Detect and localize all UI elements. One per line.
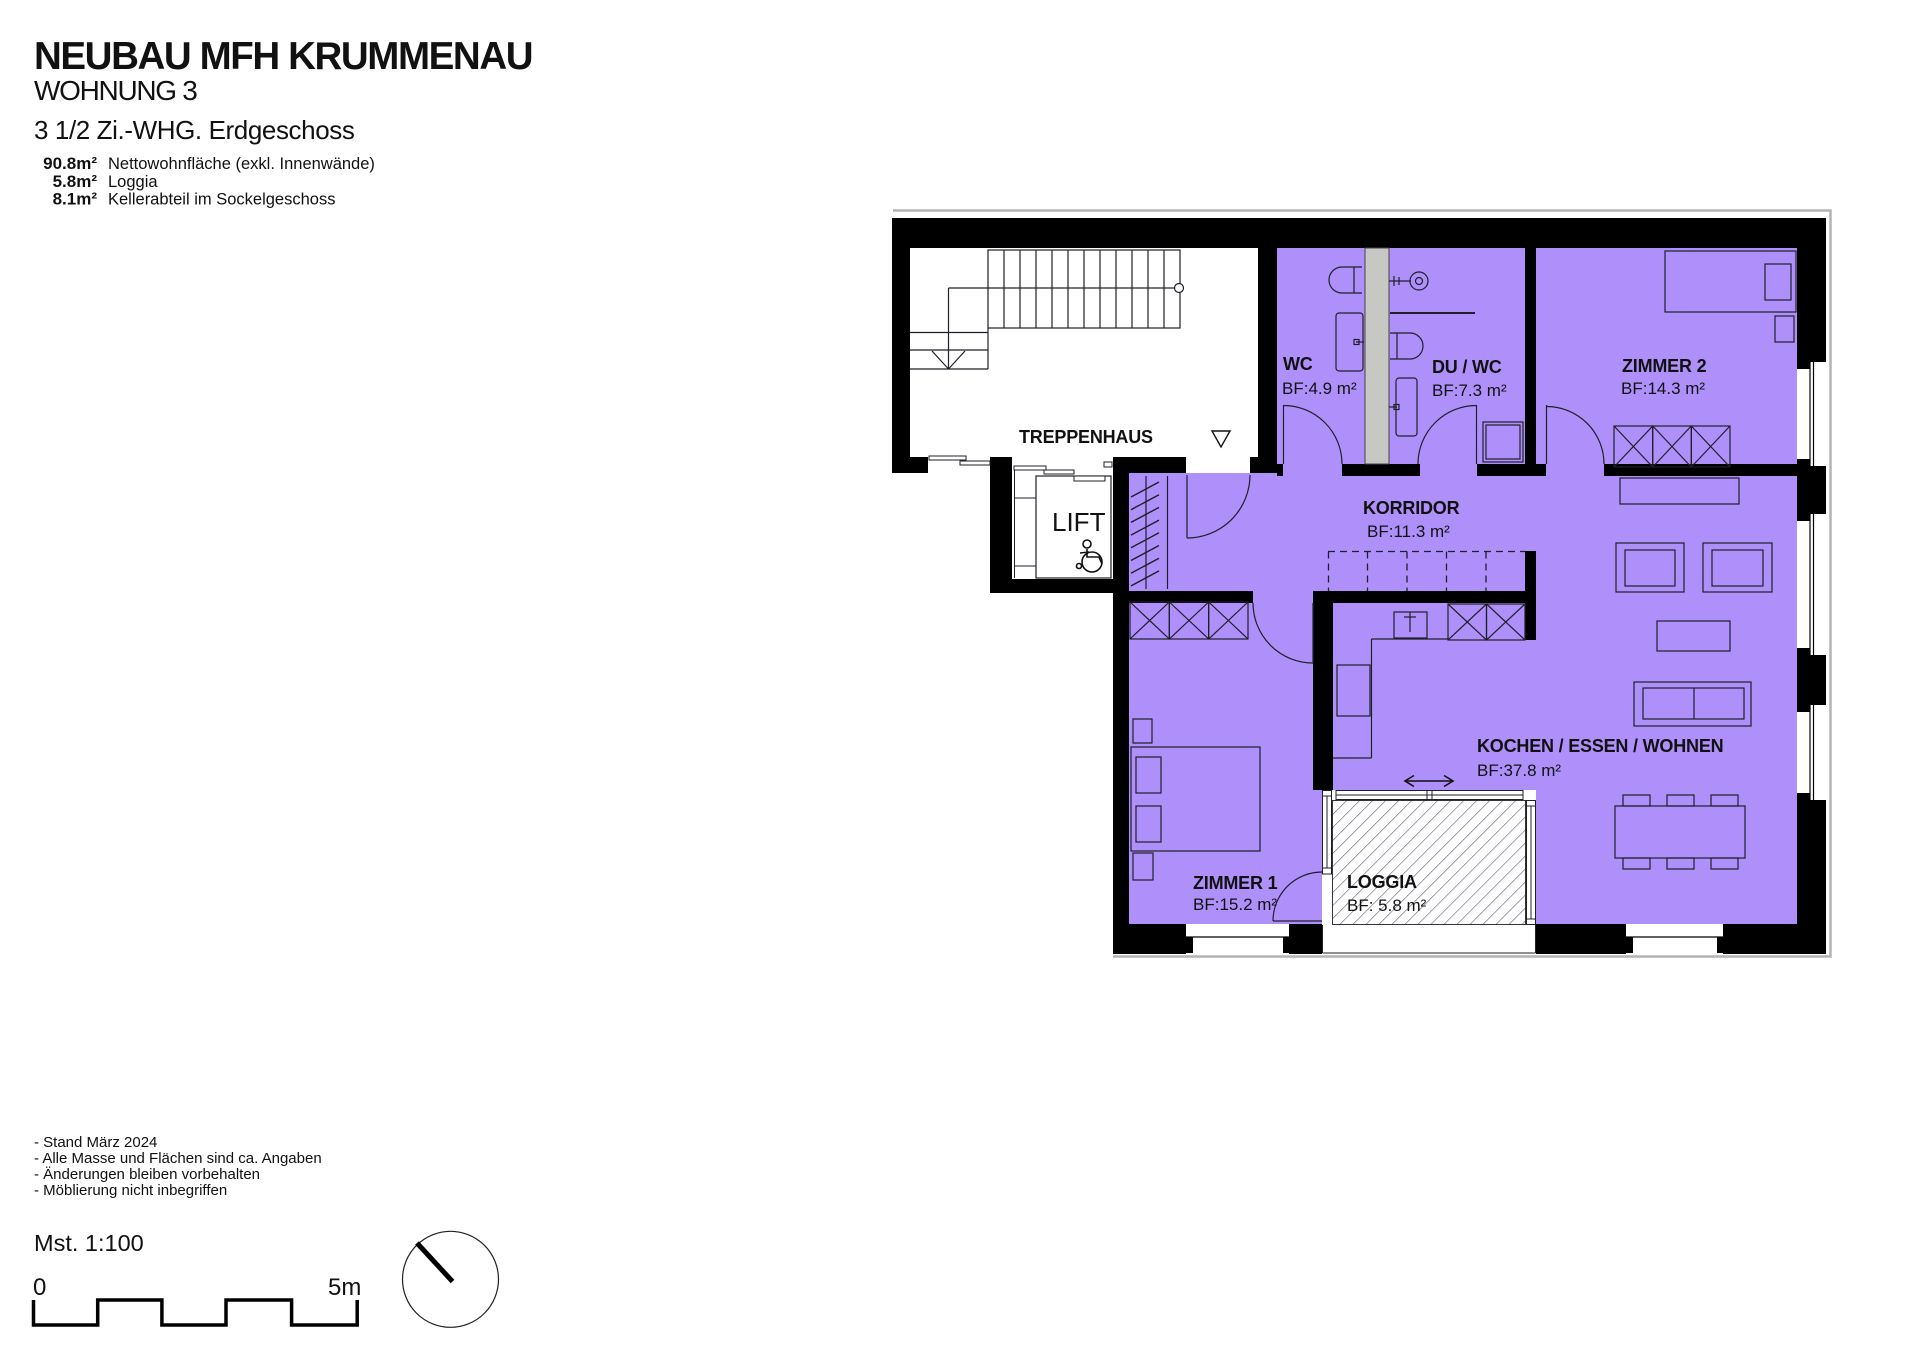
svg-text:KOCHEN / ESSEN / WOHNEN: KOCHEN / ESSEN / WOHNEN bbox=[1477, 736, 1723, 756]
svg-text:BF:37.8 m²: BF:37.8 m² bbox=[1477, 761, 1561, 780]
svg-text:Loggia: Loggia bbox=[108, 173, 158, 191]
svg-text:- Möblierung nicht inbegriffen: - Möblierung nicht inbegriffen bbox=[34, 1182, 227, 1199]
svg-text:DU / WC: DU / WC bbox=[1432, 357, 1502, 377]
svg-text:KORRIDOR: KORRIDOR bbox=[1363, 498, 1460, 518]
svg-text:3 1/2 Zi.-WHG. Erdgeschoss: 3 1/2 Zi.-WHG. Erdgeschoss bbox=[34, 115, 355, 145]
svg-text:- Alle Masse und Flächen sind: - Alle Masse und Flächen sind ca. Angabe… bbox=[34, 1150, 322, 1167]
svg-text:BF:4.9 m²: BF:4.9 m² bbox=[1282, 379, 1357, 398]
svg-text:ZIMMER 1: ZIMMER 1 bbox=[1193, 873, 1278, 893]
svg-text:5m: 5m bbox=[328, 1274, 361, 1301]
svg-text:BF:15.2 m²: BF:15.2 m² bbox=[1193, 895, 1277, 914]
svg-text:BF: 5.8 m²: BF: 5.8 m² bbox=[1347, 896, 1427, 915]
svg-text:WOHNUNG 3: WOHNUNG 3 bbox=[34, 75, 197, 106]
svg-text:ZIMMER 2: ZIMMER 2 bbox=[1622, 356, 1707, 376]
svg-text:- Stand März 2024: - Stand März 2024 bbox=[34, 1134, 157, 1151]
svg-text:90.8m²: 90.8m² bbox=[43, 154, 97, 173]
svg-text:BF:11.3 m²: BF:11.3 m² bbox=[1367, 522, 1450, 541]
svg-text:BF:14.3 m²: BF:14.3 m² bbox=[1621, 379, 1705, 398]
svg-text:8.1m²: 8.1m² bbox=[53, 190, 98, 209]
svg-text:TREPPENHAUS: TREPPENHAUS bbox=[1019, 427, 1153, 447]
svg-text:Mst. 1:100: Mst. 1:100 bbox=[34, 1230, 144, 1256]
svg-text:LIFT: LIFT bbox=[1052, 507, 1106, 537]
svg-text:Kellerabteil im Sockelgeschoss: Kellerabteil im Sockelgeschoss bbox=[108, 191, 335, 209]
svg-text:WC: WC bbox=[1283, 354, 1313, 374]
svg-text:- Änderungen bleiben vorbehalt: - Änderungen bleiben vorbehalten bbox=[34, 1166, 260, 1183]
svg-text:0: 0 bbox=[33, 1274, 46, 1301]
svg-text:5.8m²: 5.8m² bbox=[53, 172, 98, 191]
svg-text:LOGGIA: LOGGIA bbox=[1347, 872, 1417, 892]
svg-text:Nettowohnfläche (exkl. Innenwä: Nettowohnfläche (exkl. Innenwände) bbox=[108, 155, 375, 173]
svg-text:BF:7.3 m²: BF:7.3 m² bbox=[1432, 381, 1507, 400]
svg-text:NEUBAU MFH KRUMMENAU: NEUBAU MFH KRUMMENAU bbox=[34, 35, 532, 78]
